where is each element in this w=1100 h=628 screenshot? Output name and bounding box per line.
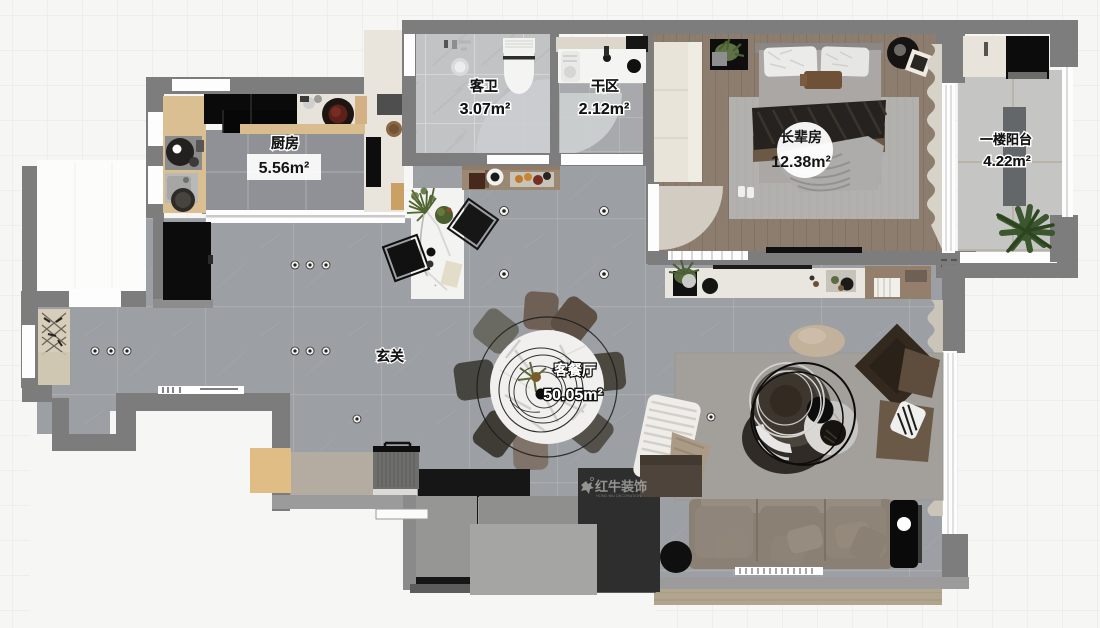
svg-text:玄关: 玄关 bbox=[376, 348, 404, 364]
svg-text:4.22m²: 4.22m² bbox=[983, 153, 1031, 170]
svg-text:2.12m²: 2.12m² bbox=[579, 101, 630, 118]
svg-text:干区: 干区 bbox=[591, 78, 619, 94]
svg-text:HONG NIU DECORATION: HONG NIU DECORATION bbox=[596, 494, 641, 498]
svg-text:5.56m²: 5.56m² bbox=[259, 160, 310, 177]
svg-text:50.05m²: 50.05m² bbox=[543, 387, 603, 404]
svg-text:红牛装饰: 红牛装饰 bbox=[595, 479, 647, 494]
svg-text:12.38m²: 12.38m² bbox=[771, 154, 831, 171]
svg-text:3.07m²: 3.07m² bbox=[460, 101, 511, 118]
svg-text:厨房: 厨房 bbox=[271, 135, 299, 151]
svg-text:客卫: 客卫 bbox=[469, 78, 498, 94]
svg-text:一楼阳台: 一楼阳台 bbox=[980, 132, 1032, 147]
svg-text:长辈房: 长辈房 bbox=[780, 129, 822, 145]
svg-text:客餐厅: 客餐厅 bbox=[553, 362, 596, 378]
